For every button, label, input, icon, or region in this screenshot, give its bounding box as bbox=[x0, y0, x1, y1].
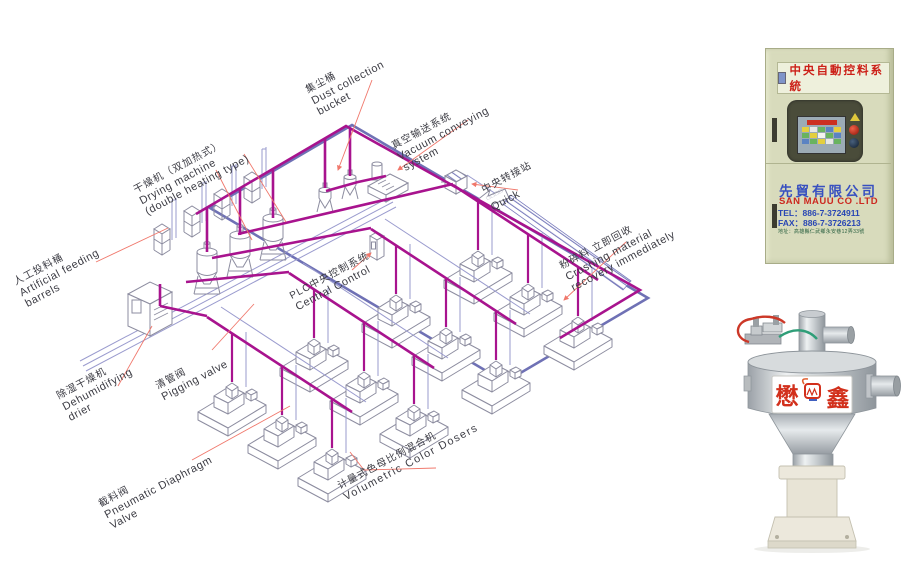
cabinet-seam bbox=[766, 163, 891, 164]
molding-machine bbox=[494, 284, 562, 337]
molding-machine bbox=[544, 317, 612, 370]
warning-indicator-icon bbox=[850, 113, 860, 121]
power-button[interactable] bbox=[849, 138, 859, 148]
company-name-en: SAN MAUU CO .LTD bbox=[768, 196, 889, 207]
brand-char-left: 懋 bbox=[776, 383, 799, 409]
outlet-pipe bbox=[866, 374, 901, 398]
hopper-loader-drawing: 懋 鑫 bbox=[715, 296, 910, 558]
molding-machine bbox=[198, 383, 266, 436]
screen-title-bar bbox=[807, 120, 837, 125]
brand-label: 懋 鑫 bbox=[772, 376, 852, 413]
molding-machine bbox=[412, 328, 480, 381]
panel-banner: 中央自動控料系統 bbox=[777, 62, 890, 94]
screenshot-root: 人工投料桶 Artificial feeding barrels 除湿干燥机 D… bbox=[0, 0, 912, 562]
feeding-barrel bbox=[184, 206, 200, 237]
cabinet-hinge bbox=[772, 204, 777, 228]
red-indicator-light[interactable] bbox=[849, 125, 859, 135]
dehumidifying-drier-machine bbox=[128, 282, 172, 336]
feeding-barrel bbox=[214, 189, 230, 220]
touchscreen[interactable] bbox=[797, 116, 846, 154]
molding-machine bbox=[462, 361, 530, 414]
banner-text: 中央自動控料系統 bbox=[790, 62, 889, 94]
molding-machine bbox=[330, 372, 398, 425]
brand-char-right: 鑫 bbox=[826, 385, 850, 411]
cabinet-hinge bbox=[772, 118, 777, 142]
pedestal-base bbox=[768, 466, 856, 548]
company-address: 地址：高雄縣仁武鄉永安巷12弄33號 bbox=[778, 228, 890, 235]
screen-button-grid bbox=[798, 127, 845, 144]
control-panel-photo: 中央自動控料系統 先貿有限公司 SAN MAUU CO .LTD TEL：886… bbox=[752, 45, 908, 277]
hopper-loader-photo: 懋 鑫 bbox=[715, 296, 910, 558]
hopper-cone bbox=[769, 414, 855, 468]
banner-mark-icon bbox=[778, 72, 786, 84]
